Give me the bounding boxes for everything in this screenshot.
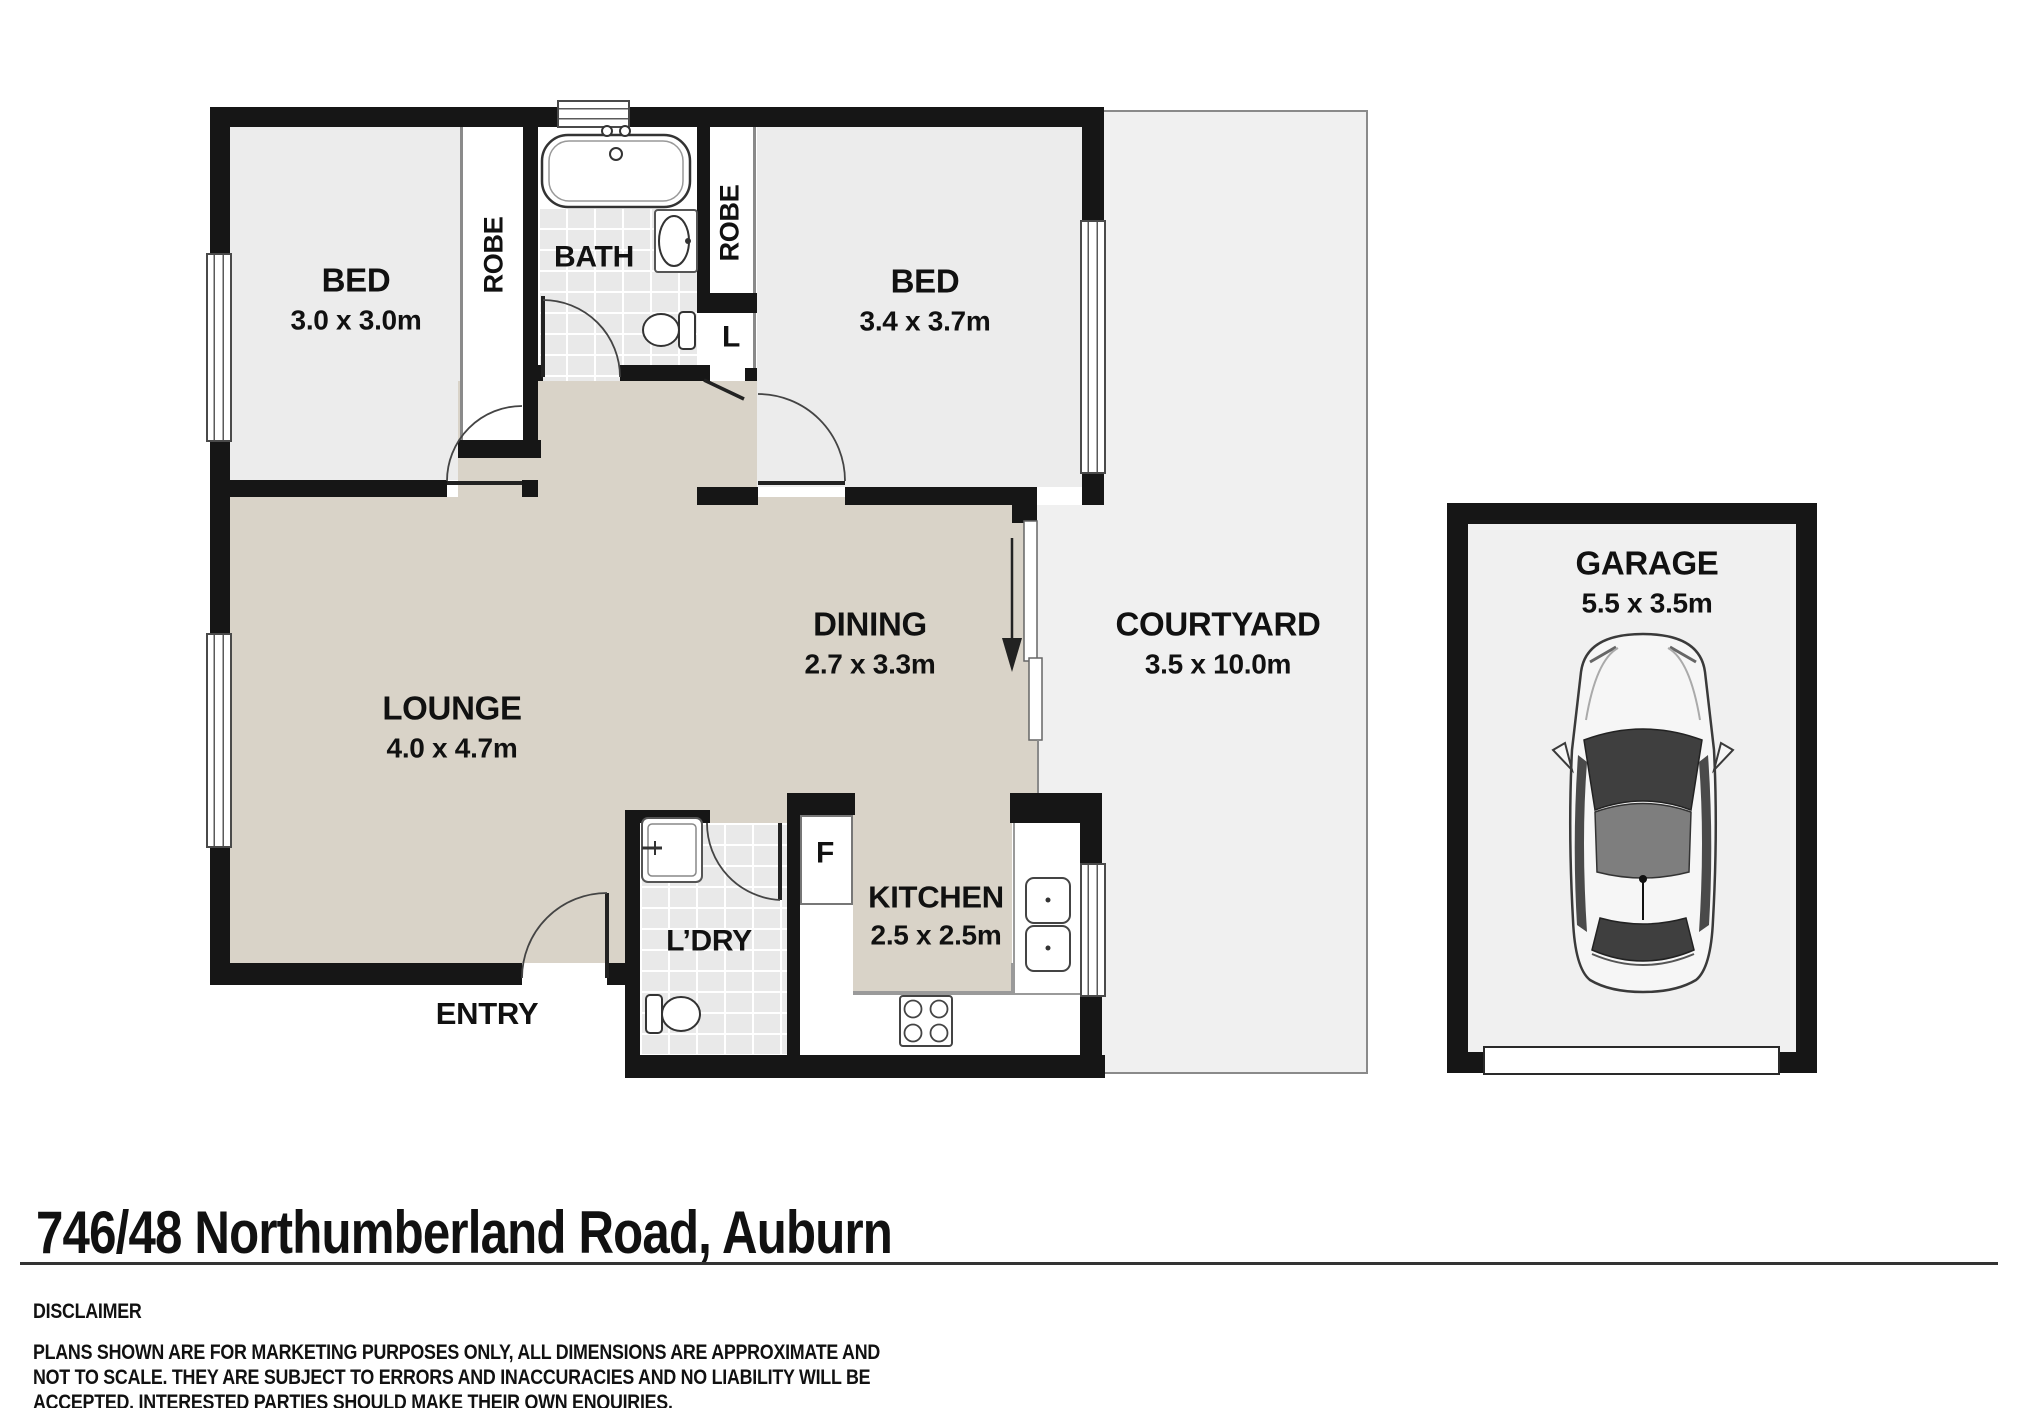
sliding-door-icon	[1024, 521, 1042, 793]
disclaimer-line-3: ACCEPTED. INTERESTED PARTIES SHOULD MAKE…	[33, 1390, 880, 1408]
bed2-door-icon	[758, 394, 845, 483]
laundry-door-icon	[707, 823, 780, 900]
laundry-toilet-icon	[646, 995, 700, 1033]
room-label-kitchen: KITCHEN 2.5 x 2.5m	[868, 878, 1004, 955]
fixtures-layer	[0, 0, 2018, 1408]
lounge-dims: 4.0 x 4.7m	[382, 730, 521, 766]
linen-door-icon	[704, 380, 744, 399]
disclaimer-line-2: NOT TO SCALE. THEY ARE SUBJECT TO ERRORS…	[33, 1365, 880, 1390]
room-label-entry: ENTRY	[436, 994, 538, 1034]
entry-door-icon	[522, 893, 607, 978]
bath-sink-icon	[655, 210, 697, 272]
bed1-door-icon	[447, 406, 522, 483]
bath-toilet-icon	[643, 312, 695, 349]
room-label-bed2: BED 3.4 x 3.7m	[860, 260, 991, 339]
kitchen-sink-icon	[1026, 878, 1070, 971]
bed1-dims: 3.0 x 3.0m	[291, 302, 422, 338]
room-label-robe-left: ROBE	[476, 217, 511, 294]
kitchen-dims: 2.5 x 2.5m	[868, 918, 1004, 954]
room-label-bath: BATH	[554, 238, 634, 277]
floorplan-page: BED 3.0 x 3.0m BED 3.4 x 3.7m LOUNGE 4.0…	[0, 0, 2018, 1408]
room-label-courtyard: COURTYARD 3.5 x 10.0m	[1115, 603, 1320, 682]
room-label-laundry: L’DRY	[666, 922, 752, 961]
room-label-fridge: F	[816, 834, 834, 873]
bathtub-icon	[542, 126, 690, 207]
divider-rule	[20, 1262, 1998, 1265]
courtyard-name: COURTYARD	[1115, 603, 1320, 646]
courtyard-dims: 3.5 x 10.0m	[1115, 646, 1320, 682]
garage-name: GARAGE	[1575, 542, 1718, 585]
bed2-name: BED	[860, 260, 991, 303]
disclaimer-line-1: PLANS SHOWN ARE FOR MARKETING PURPOSES O…	[33, 1340, 880, 1365]
disclaimer-heading: DISCLAIMER	[33, 1300, 142, 1324]
stove-icon	[900, 996, 952, 1046]
room-label-dining: DINING 2.7 x 3.3m	[805, 603, 936, 682]
bed1-name: BED	[291, 259, 422, 302]
room-label-lounge: LOUNGE 4.0 x 4.7m	[382, 687, 521, 766]
disclaimer-body: PLANS SHOWN ARE FOR MARKETING PURPOSES O…	[33, 1340, 880, 1408]
room-label-garage: GARAGE 5.5 x 3.5m	[1575, 542, 1718, 621]
entry-arrow-icon	[1002, 538, 1022, 672]
car-icon	[1553, 634, 1733, 992]
dining-name: DINING	[805, 603, 936, 646]
garage-dims: 5.5 x 3.5m	[1575, 585, 1718, 621]
page-title: 746/48 Northumberland Road, Auburn	[36, 1198, 892, 1267]
bath-door-icon	[543, 296, 620, 377]
room-label-robe-right: ROBE	[712, 185, 747, 262]
bed2-dims: 3.4 x 3.7m	[860, 303, 991, 339]
dining-dims: 2.7 x 3.3m	[805, 646, 936, 682]
room-label-bed1: BED 3.0 x 3.0m	[291, 259, 422, 338]
laundry-trough-icon	[642, 818, 702, 882]
room-label-linen: L	[722, 318, 740, 357]
lounge-name: LOUNGE	[382, 687, 521, 730]
kitchen-name: KITCHEN	[868, 878, 1004, 918]
